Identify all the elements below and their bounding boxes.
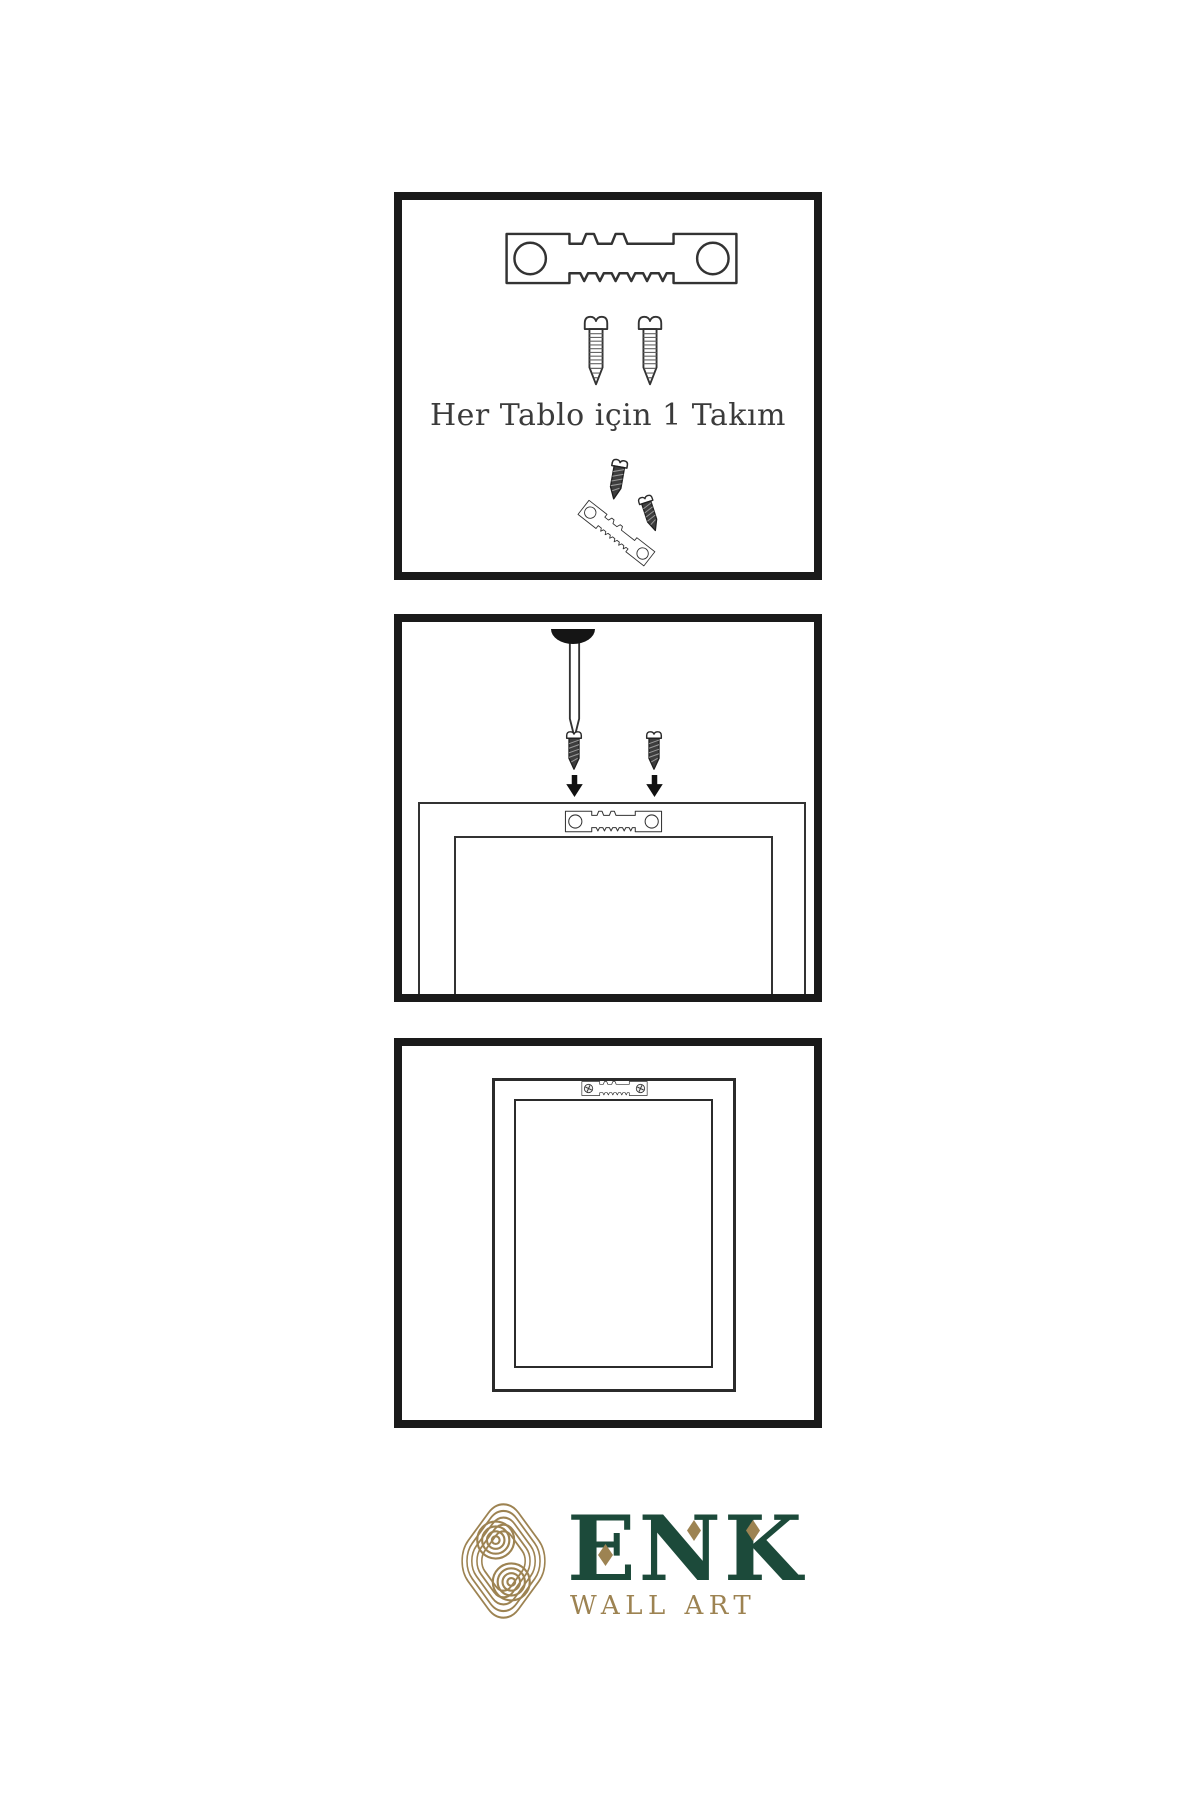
nail-head-bump: [551, 629, 595, 644]
small-screw-icon: [563, 730, 585, 772]
arrow-down-icon: [646, 775, 663, 797]
small-screw-icon: [643, 730, 665, 772]
small-screw-icon: [634, 492, 665, 536]
nail-icon: [568, 636, 581, 744]
sawtooth-hanger-installed-icon: [581, 1080, 648, 1097]
frame-back-inner-outline: [454, 836, 773, 1002]
kit-caption: Her Tablo için 1 Takım: [402, 398, 814, 433]
screw-icon: [581, 313, 611, 390]
brand-subtitle: WALL ART: [570, 1593, 756, 1619]
frame-front-inner-outline: [514, 1099, 713, 1368]
screw-icon: [635, 313, 665, 390]
panel-hung-frame: [394, 1038, 822, 1428]
panel-hardware-kit: Her Tablo için 1 Takım: [394, 192, 822, 580]
sawtooth-hanger-icon: [503, 231, 740, 286]
panel-mounting-step: [394, 614, 822, 1002]
interlocking-knot-icon: [450, 1490, 557, 1632]
kit-assembly-demo: [578, 458, 688, 570]
arrow-down-icon: [566, 775, 583, 797]
page: Her Tablo için 1 Takım: [0, 0, 1200, 1800]
small-screw-icon: [602, 456, 631, 503]
sawtooth-hanger-icon: [561, 810, 666, 833]
